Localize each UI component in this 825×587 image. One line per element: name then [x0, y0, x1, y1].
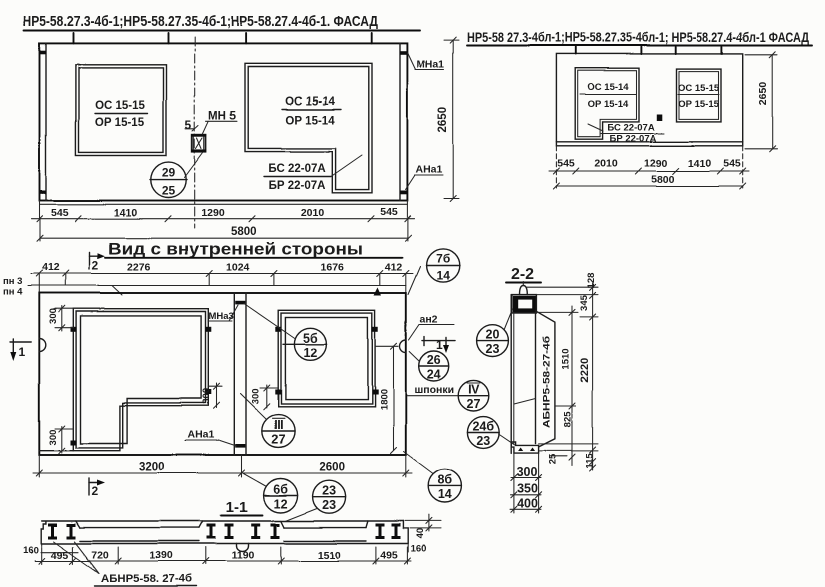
- svg-text:1290: 1290: [201, 207, 225, 219]
- svg-text:300: 300: [48, 429, 59, 445]
- svg-text:345: 345: [579, 294, 590, 311]
- svg-text:2-2: 2-2: [511, 266, 534, 283]
- svg-text:495: 495: [51, 550, 69, 562]
- svg-text:20: 20: [486, 328, 500, 342]
- svg-text:23: 23: [476, 434, 490, 448]
- svg-text:27: 27: [467, 397, 481, 411]
- svg-text:БР 22-07А: БР 22-07А: [610, 134, 657, 145]
- svg-text:1390: 1390: [149, 550, 173, 562]
- svg-text:400: 400: [517, 496, 538, 510]
- svg-text:1800: 1800: [379, 389, 390, 410]
- svg-text:29: 29: [162, 166, 176, 180]
- svg-text:1410: 1410: [114, 207, 138, 219]
- svg-text:1024: 1024: [226, 262, 250, 274]
- svg-text:МН 5: МН 5: [209, 111, 237, 123]
- svg-text:5800: 5800: [651, 174, 675, 186]
- svg-text:2650: 2650: [438, 107, 450, 133]
- svg-text:1: 1: [436, 338, 443, 352]
- svg-text:1-1: 1-1: [226, 499, 248, 516]
- svg-text:АБНР5-58. 27-4б: АБНР5-58. 27-4б: [101, 573, 192, 585]
- svg-text:23: 23: [486, 342, 500, 356]
- svg-text:ОС 15-14: ОС 15-14: [587, 82, 629, 93]
- svg-text:ОС 15-15: ОС 15-15: [678, 83, 720, 94]
- svg-text:24б: 24б: [472, 420, 494, 434]
- svg-text:5800: 5800: [231, 226, 257, 238]
- svg-text:БС 22-07А: БС 22-07А: [607, 123, 655, 134]
- svg-text:2650: 2650: [757, 82, 769, 106]
- svg-text:1410: 1410: [688, 158, 712, 170]
- svg-text:НР5-58 27.3-4бл-1;НР5-58.27.35: НР5-58 27.3-4бл-1;НР5-58.27.35-4бл-1; НР…: [467, 29, 809, 45]
- svg-text:12: 12: [303, 346, 317, 360]
- svg-text:545: 545: [557, 158, 575, 170]
- svg-text:6б: 6б: [273, 483, 288, 497]
- svg-text:2: 2: [92, 484, 99, 498]
- svg-text:2010: 2010: [594, 158, 618, 170]
- svg-text:300: 300: [48, 308, 59, 324]
- svg-text:825: 825: [563, 411, 574, 428]
- svg-text:ОР 15-14: ОР 15-14: [588, 99, 629, 110]
- svg-text:25: 25: [162, 184, 176, 198]
- svg-text:412: 412: [385, 262, 403, 274]
- svg-text:ОР 15-14: ОР 15-14: [285, 115, 335, 127]
- svg-text:25: 25: [548, 454, 559, 465]
- svg-text:1190: 1190: [232, 550, 255, 562]
- svg-text:26: 26: [427, 353, 441, 367]
- svg-text:2: 2: [92, 259, 99, 273]
- svg-text:160: 160: [411, 544, 427, 555]
- svg-text:ОР 15-15: ОР 15-15: [95, 117, 145, 129]
- svg-text:545: 545: [380, 206, 398, 218]
- svg-text:Вид с внутренней стороны: Вид с внутренней стороны: [108, 241, 363, 259]
- svg-text:пн 4: пн 4: [3, 287, 23, 298]
- svg-text:2010: 2010: [301, 207, 325, 219]
- svg-text:2220: 2220: [579, 358, 591, 382]
- svg-text:545: 545: [51, 207, 69, 219]
- svg-text:24: 24: [427, 368, 441, 382]
- svg-text:300: 300: [517, 465, 538, 479]
- svg-text:III: III: [274, 418, 283, 432]
- svg-text:АНа1: АНа1: [416, 164, 443, 176]
- svg-text:7б: 7б: [436, 252, 450, 266]
- svg-text:14: 14: [438, 487, 452, 501]
- svg-text:МНа1: МНа1: [417, 59, 445, 71]
- svg-text:5б: 5б: [303, 331, 318, 345]
- svg-text:40: 40: [415, 528, 426, 539]
- svg-text:27: 27: [271, 433, 285, 447]
- svg-text:НР5-58.27.3-4б-1;НР5-58.27.35-: НР5-58.27.3-4б-1;НР5-58.27.35-4б-1;НР5-5…: [23, 13, 378, 30]
- svg-text:БС 22-07А: БС 22-07А: [268, 163, 325, 175]
- svg-text:МНа3: МНа3: [209, 311, 234, 322]
- svg-text:412: 412: [42, 262, 60, 274]
- svg-text:128: 128: [586, 273, 597, 289]
- svg-text:14: 14: [436, 269, 450, 283]
- svg-text:пн 3: пн 3: [3, 276, 22, 287]
- svg-text:2276: 2276: [127, 262, 151, 274]
- svg-text:160: 160: [23, 545, 39, 556]
- svg-text:23: 23: [322, 484, 336, 498]
- svg-text:IV: IV: [468, 383, 480, 397]
- svg-text:3200: 3200: [139, 462, 165, 474]
- svg-text:1510: 1510: [561, 348, 572, 369]
- svg-text:1: 1: [19, 345, 26, 359]
- svg-text:720: 720: [91, 550, 109, 562]
- svg-text:АНа1: АНа1: [188, 429, 215, 441]
- svg-text:545: 545: [723, 158, 741, 170]
- svg-text:1290: 1290: [644, 158, 668, 170]
- svg-text:ОР 15-15: ОР 15-15: [678, 99, 719, 110]
- svg-text:1510: 1510: [317, 550, 341, 562]
- svg-text:12: 12: [274, 497, 288, 511]
- svg-text:2600: 2600: [319, 462, 345, 474]
- svg-text:5: 5: [185, 118, 192, 132]
- svg-text:ОС 15-14: ОС 15-14: [285, 96, 335, 108]
- svg-text:БР 22-07А: БР 22-07А: [269, 180, 326, 192]
- svg-text:8б: 8б: [437, 472, 452, 486]
- svg-text:ОС 15-15: ОС 15-15: [95, 100, 145, 112]
- svg-text:300: 300: [201, 388, 212, 404]
- svg-text:АБНР5-58-27-4б: АБНР5-58-27-4б: [542, 336, 553, 428]
- svg-text:350: 350: [517, 481, 538, 495]
- svg-text:23: 23: [322, 498, 336, 512]
- svg-text:495: 495: [380, 550, 398, 562]
- svg-text:шпонки: шпонки: [415, 384, 455, 396]
- svg-text:1676: 1676: [321, 262, 345, 274]
- svg-text:300: 300: [251, 388, 262, 404]
- svg-text:115: 115: [585, 453, 596, 469]
- svg-text:ан2: ан2: [420, 314, 438, 326]
